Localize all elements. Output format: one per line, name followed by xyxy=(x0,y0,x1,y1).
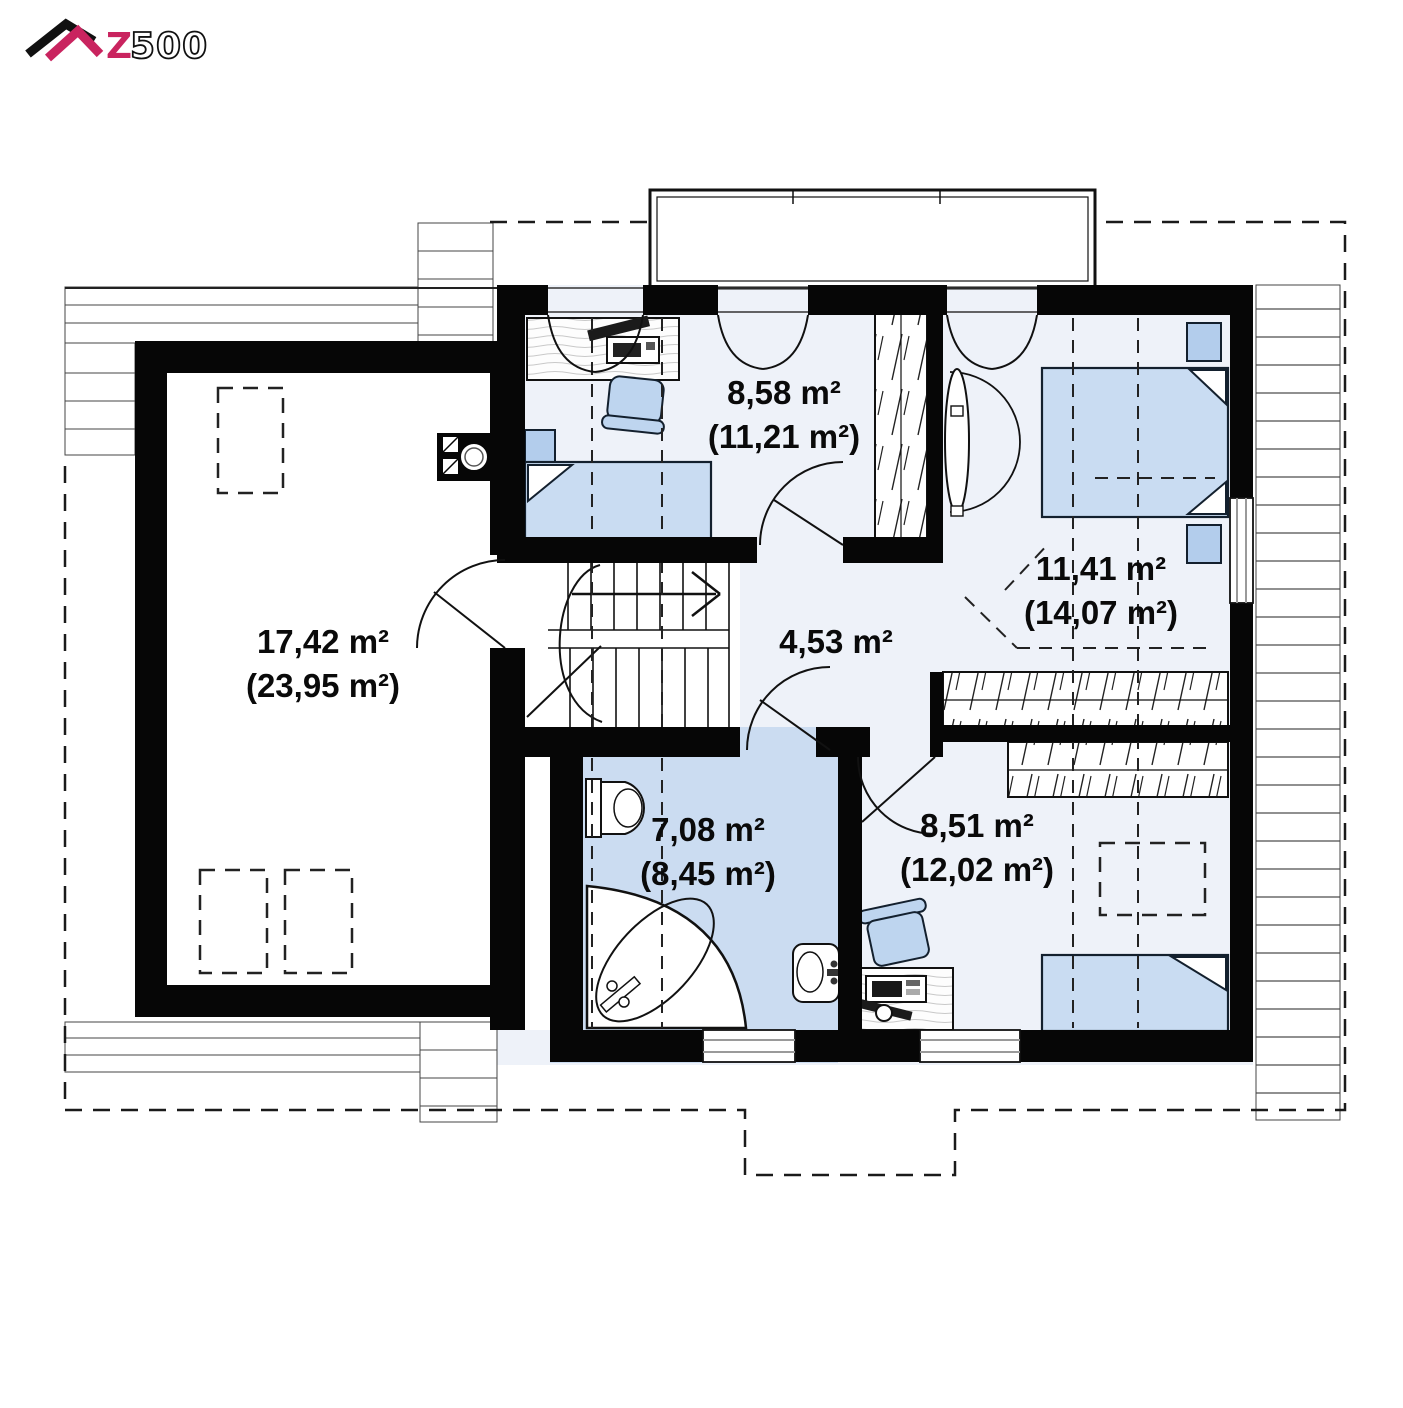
toilet xyxy=(586,779,644,837)
room-area-total: (8,45 m²) xyxy=(640,852,776,896)
sink xyxy=(793,944,839,1002)
room-area: 17,42 m² xyxy=(246,620,400,664)
logo-z: Z xyxy=(106,26,132,67)
nightstand-right-bedroom-1 xyxy=(1187,323,1221,361)
window-bottom-bathroom xyxy=(703,1030,795,1062)
bed-right-bedroom xyxy=(1042,368,1228,517)
nightstand-right-bedroom-2 xyxy=(1187,525,1221,563)
logo-500: 500 xyxy=(130,26,208,67)
room-area: 4,53 m² xyxy=(779,620,893,664)
room-area: 11,41 m² xyxy=(1024,547,1178,591)
window-bottom-bedroom xyxy=(920,1030,1020,1062)
floor-plan-page: Z 500 17,42 m² (23,95 m²) 8,58 m² (11,21… xyxy=(0,0,1403,1408)
room-label-hall: 4,53 m² xyxy=(779,620,893,664)
floor-plan-canvas xyxy=(0,0,1403,1408)
window-right-bedroom xyxy=(1230,498,1253,603)
room-label-bottom-bedroom: 8,51 m² (12,02 m²) xyxy=(900,804,1054,892)
room-area: 8,51 m² xyxy=(900,804,1054,848)
room-label-bathroom: 7,08 m² (8,45 m²) xyxy=(640,808,776,896)
room-area: 8,58 m² xyxy=(708,371,860,415)
wardrobe-bottom-bedroom xyxy=(1008,742,1228,797)
room-label-right-bedroom: 11,41 m² (14,07 m²) xyxy=(1024,547,1178,635)
room-label-attic: 17,42 m² (23,95 m²) xyxy=(246,620,400,708)
room-label-top-bedroom: 8,58 m² (11,21 m²) xyxy=(708,371,860,459)
z500-logo: Z 500 xyxy=(14,8,234,72)
room-area-total: (12,02 m²) xyxy=(900,848,1054,892)
room-area-total: (23,95 m²) xyxy=(246,664,400,708)
room-area: 7,08 m² xyxy=(640,808,776,852)
chair-top-bedroom xyxy=(601,375,668,434)
bed-bottom-bedroom xyxy=(1042,955,1228,1031)
wardrobe-top-bedroom xyxy=(875,313,927,560)
room-area-total: (11,21 m²) xyxy=(708,415,860,459)
chimney-vent xyxy=(437,433,497,481)
room-area-total: (14,07 m²) xyxy=(1024,591,1178,635)
balcony-railing xyxy=(650,190,1095,288)
bed-top-bedroom xyxy=(525,462,711,543)
wardrobe-right-bedroom xyxy=(943,672,1228,727)
nightstand-top-bedroom xyxy=(525,430,555,463)
